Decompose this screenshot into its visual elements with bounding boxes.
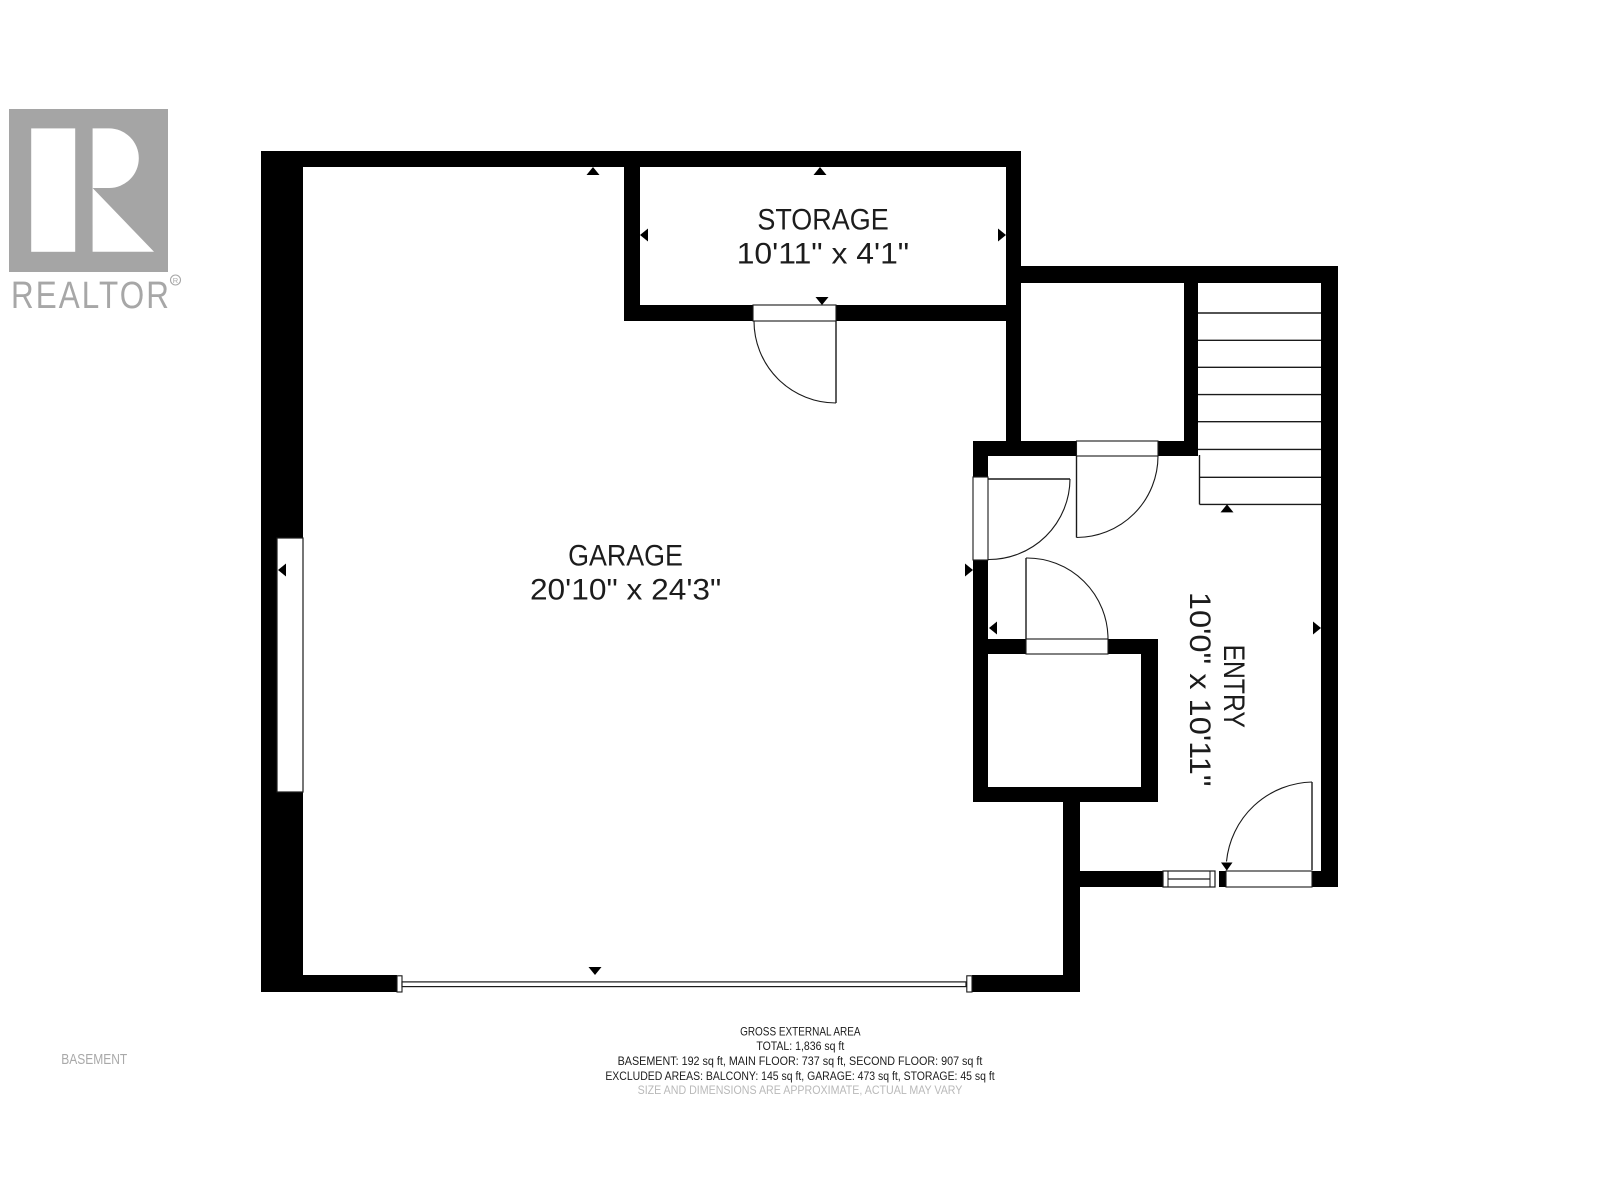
svg-text:R: R bbox=[173, 276, 179, 285]
svg-text:10'11" x 4'1": 10'11" x 4'1" bbox=[737, 236, 909, 270]
svg-text:ENTRY: ENTRY bbox=[1217, 645, 1251, 728]
svg-text:BASEMENT: 192 sq ft, MAIN FLOO: BASEMENT: 192 sq ft, MAIN FLOOR: 737 sq … bbox=[618, 1055, 984, 1068]
svg-text:GARAGE: GARAGE bbox=[568, 539, 683, 573]
svg-text:10'0" x 10'11": 10'0" x 10'11" bbox=[1183, 592, 1216, 787]
svg-text:BASEMENT: BASEMENT bbox=[61, 1051, 127, 1067]
svg-text:SIZE AND DIMENSIONS ARE APPROX: SIZE AND DIMENSIONS ARE APPROXIMATE, ACT… bbox=[638, 1084, 963, 1097]
svg-text:GROSS EXTERNAL AREA: GROSS EXTERNAL AREA bbox=[740, 1026, 861, 1039]
svg-text:STORAGE: STORAGE bbox=[757, 203, 888, 237]
svg-text:EXCLUDED AREAS: BALCONY: 145 s: EXCLUDED AREAS: BALCONY: 145 sq ft, GARA… bbox=[605, 1070, 995, 1083]
svg-text:TOTAL: 1,836 sq ft: TOTAL: 1,836 sq ft bbox=[756, 1040, 845, 1053]
svg-text:REALTOR: REALTOR bbox=[11, 274, 171, 317]
svg-text:20'10" x 24'3": 20'10" x 24'3" bbox=[530, 572, 721, 606]
